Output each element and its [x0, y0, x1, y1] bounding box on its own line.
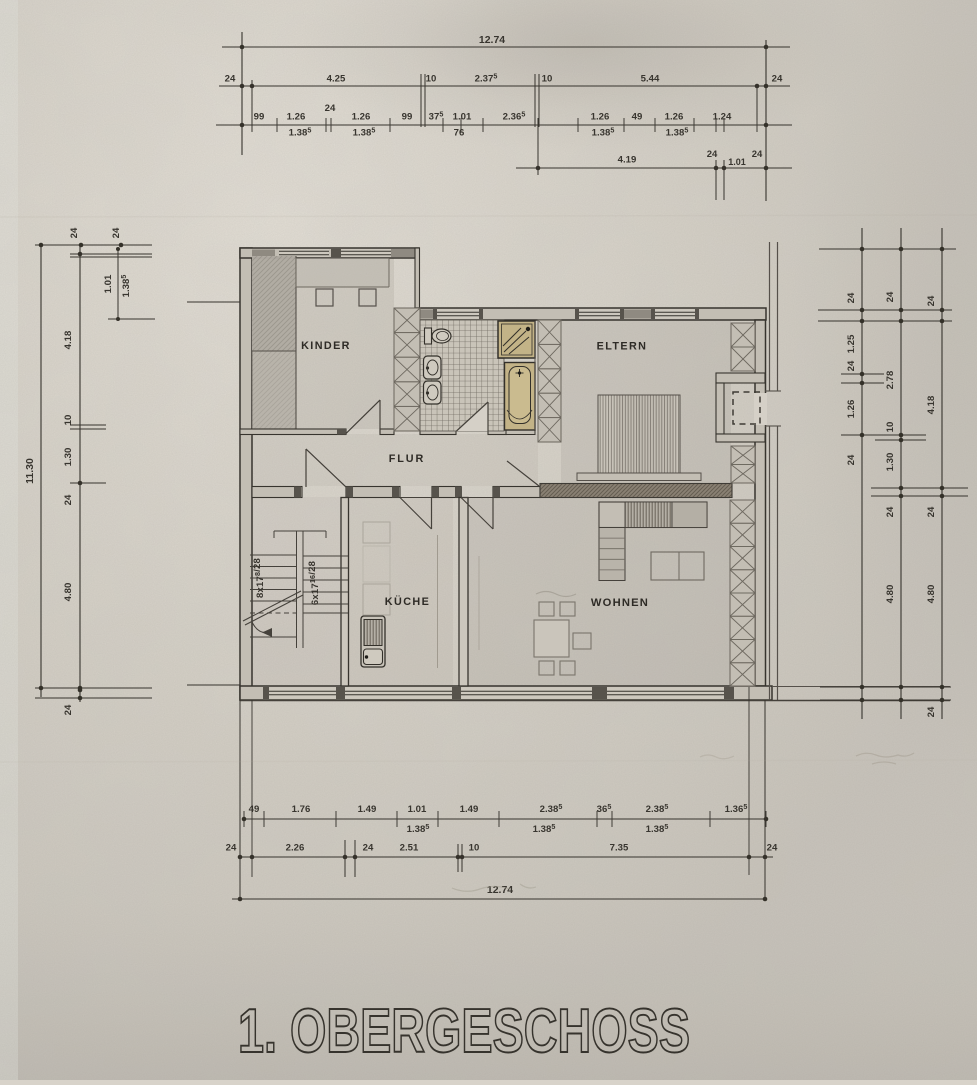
svg-text:1.24: 1.24: [713, 112, 732, 123]
svg-text:1.01: 1.01: [728, 157, 746, 167]
svg-text:1.26: 1.26: [352, 112, 371, 123]
svg-text:1.01: 1.01: [408, 804, 427, 815]
svg-text:4.19: 4.19: [618, 155, 637, 166]
svg-text:1.26: 1.26: [287, 112, 306, 123]
svg-text:24: 24: [885, 291, 896, 302]
svg-text:10: 10: [426, 74, 437, 85]
svg-text:1.01: 1.01: [453, 112, 472, 123]
svg-text:4.18: 4.18: [926, 395, 937, 414]
svg-text:1.26: 1.26: [665, 112, 684, 123]
svg-text:24: 24: [363, 843, 374, 854]
svg-text:24: 24: [63, 704, 74, 715]
svg-text:24: 24: [846, 360, 857, 371]
svg-text:FLUR: FLUR: [389, 453, 425, 465]
svg-text:2.51: 2.51: [400, 843, 419, 854]
svg-text:1.30: 1.30: [63, 448, 74, 467]
svg-text:24: 24: [767, 843, 778, 854]
svg-text:7.35: 7.35: [610, 843, 629, 854]
svg-text:10: 10: [542, 74, 553, 85]
svg-text:24: 24: [846, 292, 857, 303]
svg-text:10: 10: [63, 415, 74, 426]
svg-text:24: 24: [926, 706, 937, 717]
svg-text:24: 24: [846, 454, 857, 465]
svg-text:2.26: 2.26: [286, 843, 305, 854]
svg-text:1.49: 1.49: [460, 804, 479, 815]
svg-text:24: 24: [772, 74, 783, 85]
svg-text:24: 24: [926, 295, 937, 306]
svg-text:1.76: 1.76: [292, 804, 311, 815]
svg-text:49: 49: [632, 112, 643, 123]
svg-text:4.80: 4.80: [63, 583, 74, 602]
svg-text:WOHNEN: WOHNEN: [591, 597, 649, 609]
svg-text:2.78: 2.78: [885, 370, 896, 389]
svg-text:12.74: 12.74: [487, 884, 513, 896]
svg-text:24: 24: [752, 149, 763, 160]
svg-text:1.30: 1.30: [885, 453, 896, 472]
svg-text:1.49: 1.49: [358, 804, 377, 815]
svg-text:11.30: 11.30: [24, 458, 36, 484]
svg-text:4.18: 4.18: [63, 330, 74, 349]
svg-text:10: 10: [469, 843, 480, 854]
svg-text:24: 24: [63, 494, 74, 505]
svg-text:99: 99: [254, 112, 265, 123]
svg-text:5.44: 5.44: [641, 74, 660, 85]
svg-text:4.80: 4.80: [926, 585, 937, 604]
svg-text:ELTERN: ELTERN: [597, 341, 648, 353]
svg-text:76: 76: [454, 128, 465, 139]
svg-text:1.25: 1.25: [846, 334, 857, 353]
svg-text:KINDER: KINDER: [301, 340, 351, 352]
svg-text:1. OBERGESCHOSS: 1. OBERGESCHOSS: [238, 997, 690, 1066]
svg-text:24: 24: [69, 227, 80, 238]
svg-text:4.80: 4.80: [885, 585, 896, 604]
svg-text:4.25: 4.25: [327, 74, 346, 85]
svg-text:24: 24: [707, 149, 718, 160]
svg-text:1.01: 1.01: [103, 274, 114, 293]
svg-text:49: 49: [249, 804, 260, 815]
svg-text:24: 24: [111, 227, 122, 238]
svg-text:99: 99: [402, 112, 413, 123]
svg-text:1.26: 1.26: [591, 112, 610, 123]
svg-text:24: 24: [926, 506, 937, 517]
svg-text:24: 24: [225, 74, 236, 85]
svg-text:1.26: 1.26: [846, 400, 857, 419]
svg-text:12.74: 12.74: [479, 34, 505, 46]
svg-text:24: 24: [325, 103, 336, 114]
svg-text:KÜCHE: KÜCHE: [385, 595, 430, 608]
svg-text:24: 24: [885, 506, 896, 517]
svg-text:10: 10: [885, 422, 896, 433]
svg-text:24: 24: [226, 843, 237, 854]
